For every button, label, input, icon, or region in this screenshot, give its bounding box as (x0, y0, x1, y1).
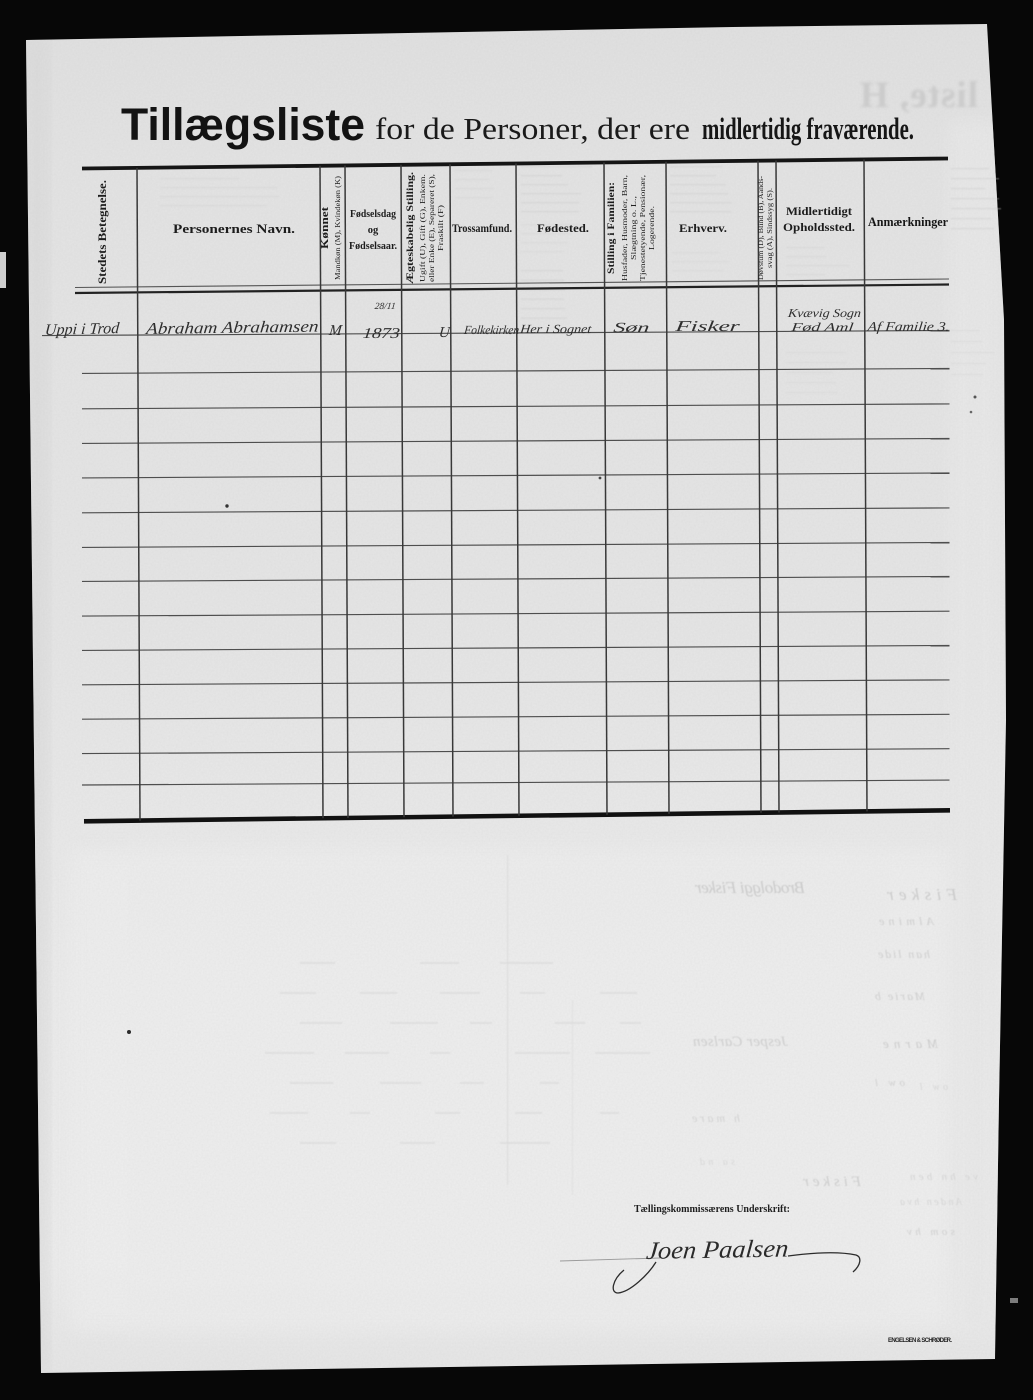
svg-text:Anmærkninger: Anmærkninger (868, 214, 948, 229)
svg-text:Søn: Søn (613, 320, 651, 336)
svg-text:28/11: 28/11 (374, 302, 396, 312)
svg-text:liste, H: liste, H (860, 75, 978, 116)
svg-text:og: og (368, 225, 379, 236)
svg-text:Kønnet: Kønnet (320, 206, 331, 249)
svg-text:Logerende.: Logerende. (648, 206, 656, 250)
svg-text:Personernes Navn.: Personernes Navn. (173, 221, 295, 236)
svg-text:Joen Paalsen: Joen Paalsen (645, 1236, 790, 1265)
svg-text:Af Familie 3.: Af Familie 3. (866, 319, 951, 334)
svg-text:Mandkøn (M), Kvindekøn (K): Mandkøn (M), Kvindekøn (K) (333, 176, 342, 280)
svg-text:Stedets Betegnelse.: Stedets Betegnelse. (97, 180, 109, 284)
svg-text:Fisker: Fisker (673, 319, 741, 335)
svg-text:Anden hva: Anden hva (900, 1197, 963, 1208)
svg-text:svag (A), Sindssyg (S).: svag (A), Sindssyg (S). (767, 188, 774, 268)
svg-text:Midlertidigt: Midlertidigt (786, 204, 852, 218)
svg-text:Husfader, Husmoder, Barn,: Husfader, Husmoder, Barn, (621, 175, 629, 281)
svg-text:eller Enke (E), Separeret (S),: eller Enke (E), Separeret (S), (428, 174, 436, 282)
svg-text:Fødselsdag: Fødselsdag (350, 209, 397, 220)
svg-text:Folkekirken: Folkekirken (463, 323, 520, 337)
svg-text:Slægtning o. L.,: Slægtning o. L., (630, 196, 638, 260)
svg-text:Tællingskommissærens Underskri: Tællingskommissærens Underskrift: (634, 1203, 790, 1215)
svg-text:ENGELSEN & SCHRØDER.: ENGELSEN & SCHRØDER. (888, 1338, 952, 1344)
svg-text:han lide: han lide (877, 947, 930, 961)
svg-text:Stilling i Familien:: Stilling i Familien: (607, 182, 617, 274)
svg-text:midlertidig fraværende.: midlertidig fraværende. (702, 111, 914, 146)
svg-text:Ugift (U), Gift (G), Enkem.: Ugift (U), Gift (G), Enkem. (419, 174, 427, 282)
svg-text:Brodolggi Fisker: Brodolggi Fisker (695, 878, 805, 897)
svg-text:Døvstum (D), Blind (B), Aands-: Døvstum (D), Blind (B), Aands- (758, 175, 765, 280)
svg-text:Her i Sognet: Her i Sognet (518, 322, 592, 336)
svg-text:Fødested.: Fødested. (537, 221, 589, 235)
svg-text:Abraham Abrahamsen: Abraham Abrahamsen (144, 317, 319, 338)
svg-text:Trossamfund.: Trossamfund. (452, 221, 512, 235)
svg-text:Tillægsliste: Tillægsliste (121, 99, 365, 150)
svg-text:Tjenestetyende, Pensionær,: Tjenestetyende, Pensionær, (639, 175, 647, 281)
svg-text:ve hn ben: ve hn ben (910, 1171, 979, 1183)
svg-text:Ægteskabelig Stilling.: Ægteskabelig Stilling. (406, 172, 416, 284)
svg-text:Jesper Carlsen: Jesper Carlsen (693, 1034, 788, 1050)
svg-text:Fød Aml: Fød Aml (789, 320, 855, 334)
svg-text:Fraskilt (F): Fraskilt (F) (437, 204, 445, 251)
svg-text:Erhverv.: Erhverv. (679, 221, 727, 235)
svg-text:1873: 1873 (362, 326, 401, 342)
svg-text:Opholdssted.: Opholdssted. (783, 220, 855, 234)
svg-text:Kvævig Sogn: Kvævig Sogn (786, 306, 862, 320)
svg-text:for de Personer, der ere: for de Personer, der ere (375, 111, 690, 146)
svg-text:Uppi i Trod: Uppi i Trod (44, 320, 120, 339)
svg-text:Fødselsaar.: Fødselsaar. (349, 241, 397, 252)
